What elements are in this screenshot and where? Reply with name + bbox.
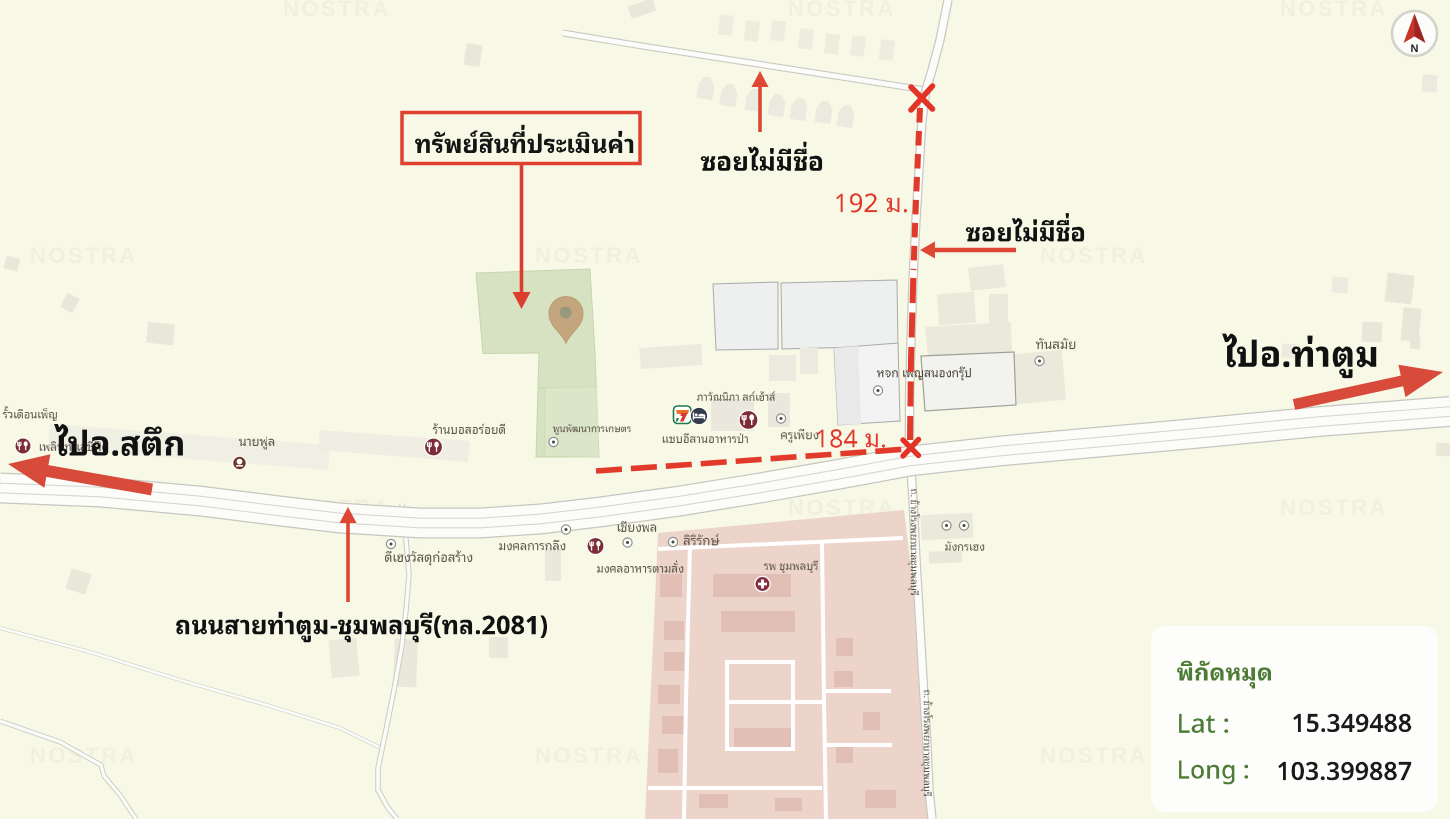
svg-text:NOSTRA: NOSTRA xyxy=(283,0,391,21)
svg-text:NOSTRA: NOSTRA xyxy=(1040,743,1148,768)
svg-text:NOSTRA: NOSTRA xyxy=(1040,243,1148,268)
svg-text:NOSTRA: NOSTRA xyxy=(30,243,138,268)
svg-text:N: N xyxy=(1411,43,1419,55)
svg-text:NOSTRA: NOSTRA xyxy=(1280,495,1388,520)
svg-text:NOSTRA: NOSTRA xyxy=(535,243,643,268)
svg-text:NOSTRA: NOSTRA xyxy=(788,0,896,21)
svg-text:NOSTRA: NOSTRA xyxy=(535,743,643,768)
svg-text:NOSTRA: NOSTRA xyxy=(1280,0,1388,21)
